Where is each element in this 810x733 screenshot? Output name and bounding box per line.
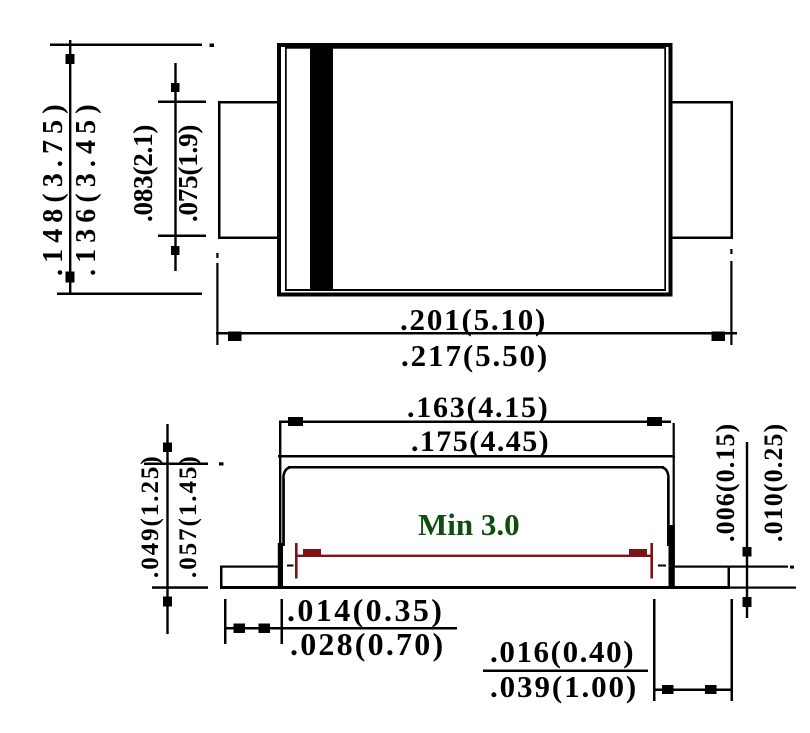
svg-text:.014(0.35): .014(0.35) [287, 592, 444, 628]
svg-text:.201(5.10): .201(5.10) [400, 302, 547, 337]
svg-text:.217(5.50): .217(5.50) [401, 338, 549, 373]
svg-text:.075(1.9): .075(1.9) [173, 125, 203, 222]
svg-text:.016(0.40): .016(0.40) [490, 634, 635, 669]
svg-text:Min 3.0: Min 3.0 [418, 507, 520, 542]
svg-text:.039(1.00): .039(1.00) [490, 669, 638, 704]
svg-text:.083(2.1): .083(2.1) [128, 125, 158, 222]
svg-text:.049(1.25): .049(1.25) [137, 454, 164, 578]
svg-text:.175(4.45): .175(4.45) [411, 425, 550, 458]
svg-text:.057(1.45): .057(1.45) [175, 454, 202, 578]
svg-text:.010(0.25): .010(0.25) [759, 423, 788, 542]
svg-text:.028(0.70): .028(0.70) [290, 626, 445, 662]
svg-text:.163(4.15): .163(4.15) [407, 391, 549, 424]
svg-text:.136(3.45): .136(3.45) [71, 98, 102, 276]
svg-text:.148(3.75): .148(3.75) [38, 98, 69, 276]
svg-text:.006(0.15): .006(0.15) [711, 423, 740, 542]
